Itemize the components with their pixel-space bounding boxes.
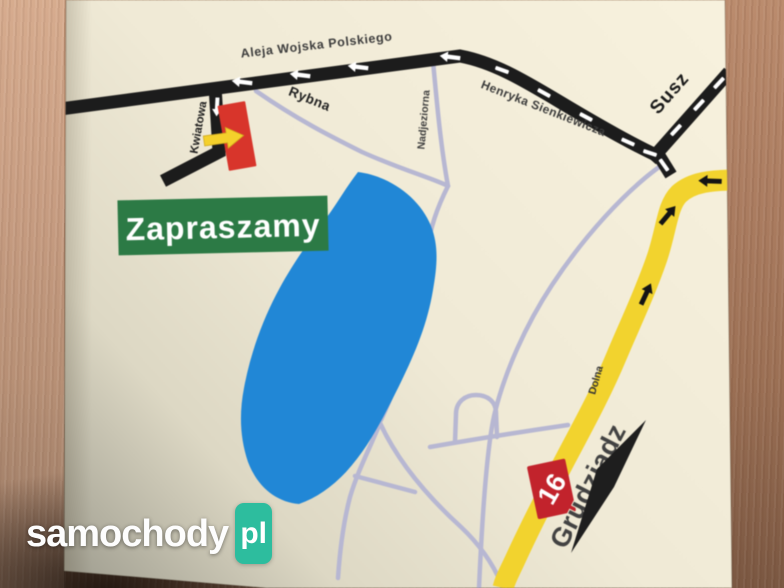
map-drawing: Zapraszamy Aleja Wojska Polskiego Rybna … [0, 0, 784, 588]
watermark-logo: samochody pl [26, 503, 272, 564]
watermark-tld-text: pl [240, 519, 267, 549]
watermark-tld-box: pl [235, 503, 272, 564]
watermark-brand-text: samochody [26, 515, 228, 553]
photo-of-map-on-wooden-table: Zapraszamy Aleja Wojska Polskiego Rybna … [0, 0, 784, 588]
banner-label: Zapraszamy [125, 207, 321, 247]
paper-left-edge-shadow [64, 0, 94, 588]
